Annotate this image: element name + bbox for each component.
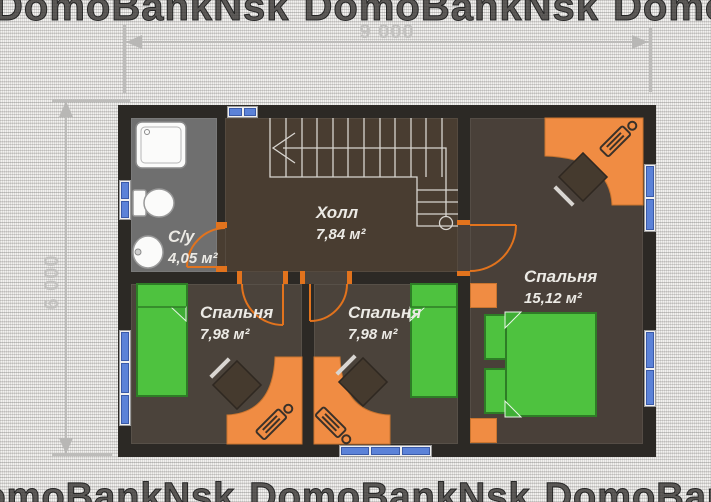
dimension-label-width: 9 000 — [124, 21, 650, 44]
hall-floor — [225, 118, 458, 272]
window-bedroom-right-top — [644, 164, 656, 232]
dimension-arrow-up — [59, 101, 73, 117]
window-pane — [341, 447, 369, 455]
window-bedroom-right-bottom — [644, 330, 656, 407]
bathroom-label: С/у 4,05 м² — [168, 226, 217, 269]
floor-plan-screenshot: DomoBankNskDomoBankNskDomoBankNskDomoBan… — [0, 0, 711, 502]
window-bathroom — [119, 180, 131, 220]
dimension-arrow-down — [59, 438, 73, 454]
bedroom-middle-door-opening — [305, 272, 347, 284]
room-area: 7,98 м² — [348, 325, 421, 345]
nightstand-bottom — [484, 368, 507, 414]
bedroom-left-label: Спальня 7,98 м² — [200, 302, 273, 345]
window-pane — [646, 199, 654, 230]
bedroom-right-label: Спальня 15,12 м² — [524, 266, 597, 309]
room-area: 7,98 м² — [200, 325, 273, 345]
window-pane — [402, 447, 430, 455]
watermark-row-bottom: DomoBankNskDomoBankNskDomoBankNskDomoBan… — [0, 476, 711, 502]
window-bottom — [339, 445, 432, 457]
wardrobe-bottom — [470, 418, 497, 443]
dimension-label-height: 6 000 — [32, 242, 72, 322]
room-name: Спальня — [524, 266, 597, 289]
window-pane — [646, 332, 654, 368]
window-pane — [229, 108, 242, 116]
window-pane — [244, 108, 257, 116]
room-area: 15,12 м² — [524, 289, 597, 309]
room-name: Спальня — [200, 302, 273, 325]
window-pane — [646, 370, 654, 406]
window-pane — [646, 166, 654, 197]
bedroom-left-door-opening — [242, 272, 283, 284]
window-pane — [371, 447, 399, 455]
watermark-text: DomoBankNsk — [249, 476, 530, 502]
room-name: С/у — [168, 226, 217, 249]
window-pane — [121, 395, 129, 424]
window-pane — [121, 182, 129, 199]
double-bed — [505, 312, 597, 417]
single-bed-left — [136, 283, 188, 397]
window-top — [227, 106, 258, 118]
room-area: 7,84 м² — [316, 225, 365, 245]
watermark-text: DomoBankNsk — [545, 476, 711, 502]
wardrobe-top — [470, 283, 497, 308]
bedroom-right-door-opening — [458, 225, 470, 271]
nightstand-top — [484, 314, 507, 360]
room-name: Холл — [316, 202, 365, 225]
window-pane — [121, 201, 129, 218]
bathroom-door-opening — [217, 228, 225, 268]
room-name: Спальня — [348, 302, 421, 325]
watermark-text: DomoBankNsk — [0, 476, 235, 502]
hall-label: Холл 7,84 м² — [316, 202, 365, 245]
bedroom-middle-label: Спальня 7,98 м² — [348, 302, 421, 345]
room-area: 4,05 м² — [168, 249, 217, 269]
window-bedroom-left — [119, 330, 131, 426]
window-pane — [121, 363, 129, 392]
window-pane — [121, 332, 129, 361]
